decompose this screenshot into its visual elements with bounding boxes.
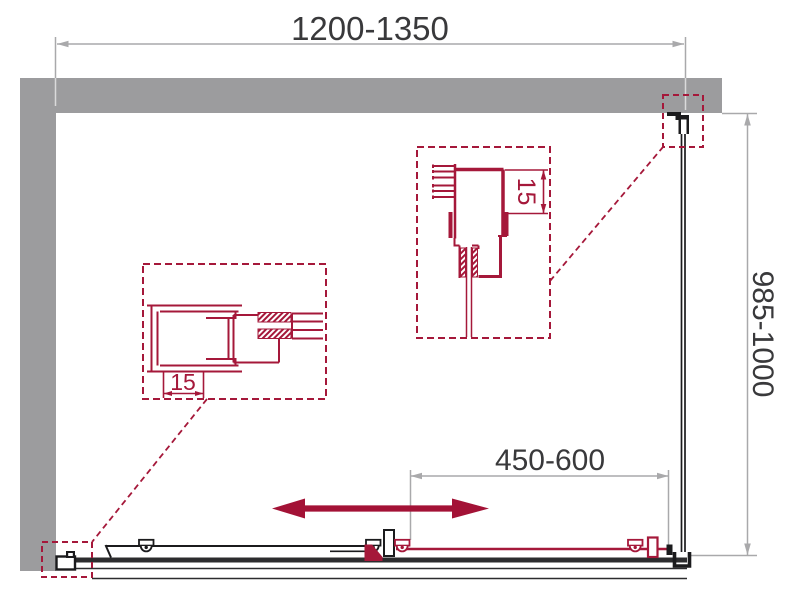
arrowhead-left-icon xyxy=(411,473,423,479)
dimension-door-travel-label: 450-600 xyxy=(495,444,605,477)
comb-teeth xyxy=(433,165,455,200)
left-wall xyxy=(20,78,56,571)
walls xyxy=(20,78,722,571)
wall-profile-icon xyxy=(667,112,689,134)
fixed-side-glass xyxy=(675,134,690,566)
seal-hatch xyxy=(258,329,291,339)
arrowhead-down-icon xyxy=(744,544,751,556)
seal-hatch xyxy=(258,313,291,323)
roller-icon xyxy=(628,540,643,552)
sliding-door xyxy=(106,530,395,558)
arrowhead-up-icon xyxy=(744,114,751,126)
fixed-panel xyxy=(395,538,668,558)
dimension-height-label: 985-1000 xyxy=(746,271,779,398)
callouts xyxy=(42,95,703,577)
arrowhead-right-icon xyxy=(673,41,685,48)
detail-top-dim-label: 15 xyxy=(512,178,540,206)
arrowhead-right-icon xyxy=(657,473,669,479)
leader-line-top xyxy=(550,147,663,281)
seal-hatch xyxy=(473,248,478,277)
door-end-bracket xyxy=(365,545,383,562)
technical-drawing: 1200-1350 985-1000 450-600 xyxy=(0,0,800,593)
top-wall xyxy=(20,78,722,113)
arrowhead-left-icon xyxy=(57,41,69,48)
track-end-profile-icon xyxy=(57,551,76,570)
panel-strip xyxy=(648,538,658,558)
leader-line-left xyxy=(92,399,207,542)
seal-hatch xyxy=(461,248,466,277)
drawing-canvas: 1200-1350 985-1000 450-600 xyxy=(0,0,800,593)
overlap-strip xyxy=(384,530,394,556)
roller-icon xyxy=(139,540,154,552)
slide-direction-arrow-icon xyxy=(272,499,489,519)
dimension-width-label: 1200-1350 xyxy=(291,10,449,47)
detail-left-dim-label: 15 xyxy=(170,369,196,395)
roller-icon xyxy=(395,540,410,552)
detail-box-top xyxy=(417,147,550,338)
panel-end-block xyxy=(667,545,673,556)
